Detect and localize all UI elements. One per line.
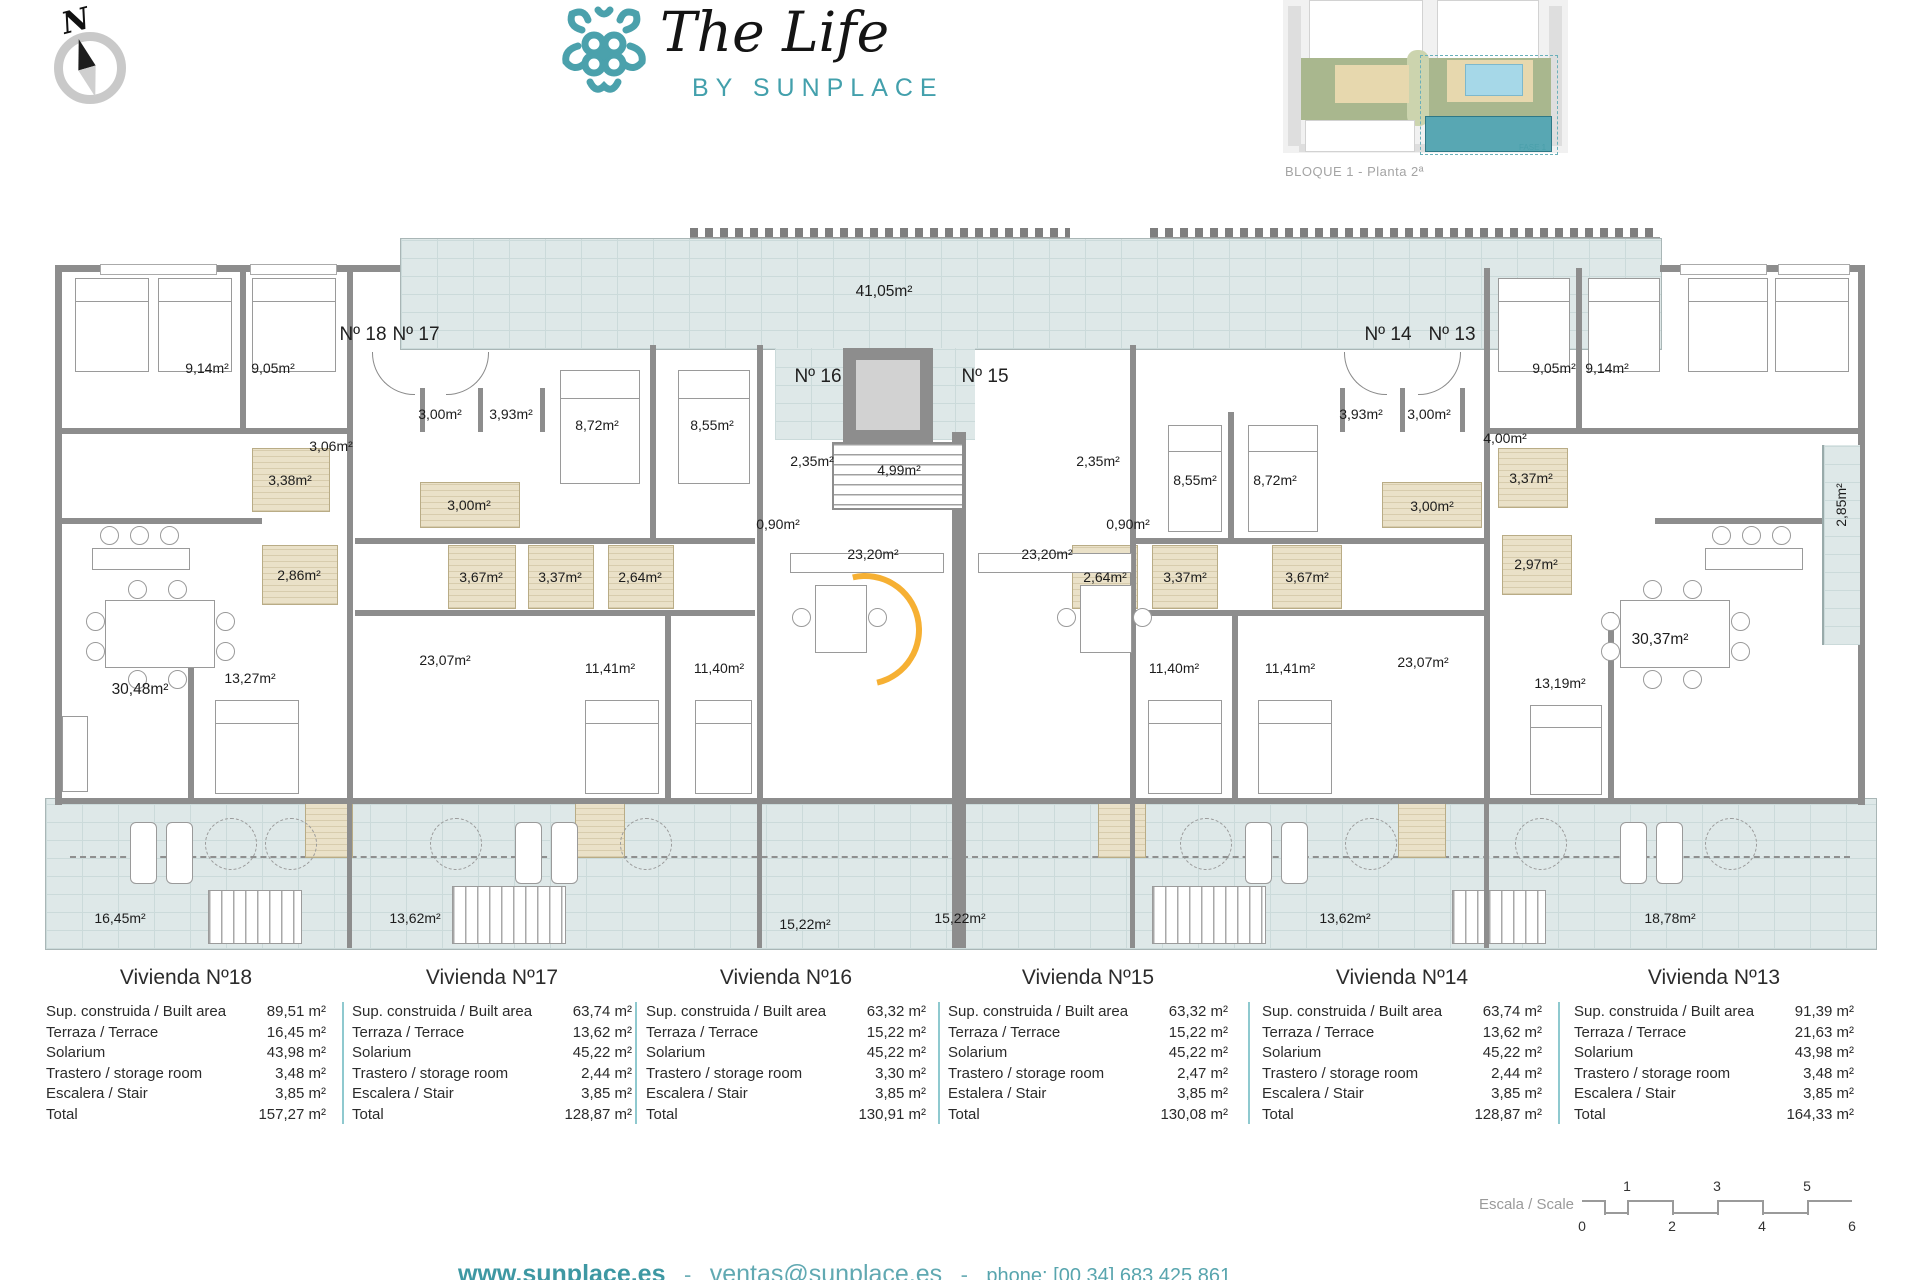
- table-divider: [342, 1002, 344, 1124]
- chair: [1643, 670, 1662, 689]
- wall: [55, 265, 62, 805]
- room-area-label: Nº 17: [392, 324, 439, 346]
- row-label: Total: [352, 1105, 384, 1126]
- table-row: Sup. construida / Built area 89,51 m²: [46, 1002, 326, 1023]
- logo-title: The Life: [660, 0, 950, 74]
- row-value: 45,22 m²: [573, 1043, 632, 1064]
- email-link[interactable]: ventas@sunplace.es: [710, 1260, 942, 1280]
- room-area-label: 13,27m²: [224, 670, 275, 686]
- row-label: Terraza / Terrace: [46, 1023, 158, 1044]
- room-area-label: 3,93m²: [489, 406, 533, 422]
- plant-circle: [1515, 818, 1567, 870]
- row-label: Trastero / storage room: [948, 1064, 1104, 1085]
- room-area-label: 0,90m²: [1106, 516, 1150, 532]
- wall: [665, 612, 671, 798]
- room-area-label: Nº 13: [1428, 324, 1475, 346]
- div: Sup. construida / Built area 63,32 m² Te…: [646, 1002, 926, 1126]
- table-row: Total 128,87 m²: [352, 1105, 632, 1126]
- row-value: 63,74 m²: [573, 1002, 632, 1023]
- scale-segment: [1807, 1200, 1852, 1202]
- furniture: [1148, 700, 1222, 794]
- table-row: Sup. construida / Built area 63,74 m²: [352, 1002, 632, 1023]
- room-area-label: 3,93m²: [1339, 406, 1383, 422]
- chair: [1731, 612, 1750, 631]
- room-area-label: 3,67m²: [459, 569, 503, 585]
- room-area-label: 15,22m²: [779, 916, 830, 932]
- room-area-label: 3,00m²: [418, 406, 462, 422]
- row-label: Escalera / Stair: [1262, 1084, 1364, 1105]
- table-divider: [938, 1002, 940, 1124]
- vivienda-table-title: Vivienda Nº14: [1262, 966, 1542, 990]
- row-label: Escalera / Stair: [352, 1084, 454, 1105]
- row-value: 13,62 m²: [573, 1023, 632, 1044]
- railing: [1150, 228, 1660, 238]
- path: [624, 46, 642, 68]
- row-value: 2,44 m²: [1491, 1064, 1542, 1085]
- path: [590, 82, 618, 89]
- room-area-label: 18,78m²: [1644, 910, 1695, 926]
- furniture: [1775, 278, 1849, 372]
- room-area-label: Nº 18: [339, 324, 386, 346]
- room-area-label: 13,62m²: [389, 910, 440, 926]
- path: [566, 46, 584, 68]
- scale-segment: [1672, 1212, 1717, 1214]
- table-row: Escalera / Stair 3,85 m²: [46, 1084, 326, 1105]
- window: [100, 264, 217, 275]
- path: [571, 12, 588, 30]
- chair: [1133, 608, 1152, 627]
- room-area-label: 11,41m²: [1265, 660, 1315, 676]
- room-area-label: 3,38m²: [268, 472, 312, 488]
- row-label: Total: [1574, 1105, 1606, 1126]
- chair: [160, 526, 179, 545]
- chair: [100, 526, 119, 545]
- row-value: 3,48 m²: [275, 1064, 326, 1085]
- scale-segment: [1627, 1200, 1672, 1202]
- vivienda-table: Vivienda Nº17 Sup. construida / Built ar…: [352, 966, 632, 1126]
- wall: [478, 388, 483, 432]
- wall: [347, 800, 352, 948]
- sun-lounger: [130, 822, 157, 884]
- row-value: 3,85 m²: [875, 1084, 926, 1105]
- table-row: Sup. construida / Built area 91,39 m²: [1574, 1002, 1854, 1023]
- wall: [62, 428, 352, 434]
- table-row: Solarium 45,22 m²: [352, 1043, 632, 1064]
- plant-circle: [620, 818, 672, 870]
- table-divider: [635, 1002, 637, 1124]
- row-value: 91,39 m²: [1795, 1002, 1854, 1023]
- room-area-label: 23,20m²: [847, 546, 898, 562]
- furniture: [215, 700, 299, 794]
- sun-lounger: [1620, 822, 1647, 884]
- row-label: Trastero / storage room: [646, 1064, 802, 1085]
- table-row: Terraza / Terrace 15,22 m²: [948, 1023, 1228, 1044]
- scale-tick: 4: [1758, 1218, 1766, 1234]
- row-value: 21,63 m²: [1795, 1023, 1854, 1044]
- elevator-cab: [856, 360, 920, 430]
- sun-lounger: [551, 822, 578, 884]
- circle: [585, 35, 603, 53]
- furniture: [1258, 700, 1332, 794]
- div: Sup. construida / Built area 63,74 m² Te…: [352, 1002, 632, 1126]
- table-row: Total 128,87 m²: [1262, 1105, 1542, 1126]
- wall: [650, 345, 656, 538]
- room-area-label: 23,07m²: [419, 652, 470, 668]
- furniture: [92, 548, 190, 570]
- scale-tick-mark: [1762, 1200, 1764, 1215]
- stairs: [208, 890, 302, 944]
- row-label: Solarium: [1262, 1043, 1321, 1064]
- room-area-label: 2,64m²: [1083, 569, 1127, 585]
- scale-segment: [1762, 1212, 1807, 1214]
- table-row: Solarium 45,22 m²: [1262, 1043, 1542, 1064]
- chair: [1712, 526, 1731, 545]
- row-value: 3,85 m²: [1803, 1084, 1854, 1105]
- chair: [130, 526, 149, 545]
- room-area-label: 11,40m²: [1149, 660, 1199, 676]
- room-area-label: 4,99m²: [877, 462, 921, 478]
- sun-lounger: [515, 822, 542, 884]
- sunplace-knot-logo-icon: [552, 2, 656, 102]
- wall: [1460, 388, 1465, 432]
- row-label: Trastero / storage room: [1574, 1064, 1730, 1085]
- wall: [1228, 412, 1234, 538]
- scale-tick-mark: [1807, 1200, 1809, 1215]
- table-row: Terraza / Terrace 21,63 m²: [1574, 1023, 1854, 1044]
- circle: [605, 35, 623, 53]
- row-value: 45,22 m²: [867, 1043, 926, 1064]
- furniture: [1530, 705, 1602, 795]
- row-label: Trastero / storage room: [1262, 1064, 1418, 1085]
- scale-tick-mark: [1627, 1200, 1629, 1215]
- table-row: Total 130,91 m²: [646, 1105, 926, 1126]
- sun-lounger: [1245, 822, 1272, 884]
- vivienda-table-title: Vivienda Nº18: [46, 966, 326, 990]
- room-area-label: 3,37m²: [538, 569, 582, 585]
- room-area-label: Nº 15: [961, 366, 1008, 388]
- furniture: [1688, 278, 1768, 372]
- row-label: Sup. construida / Built area: [948, 1002, 1128, 1023]
- room-area-label: 23,07m²: [1397, 654, 1448, 670]
- road: [1288, 6, 1301, 146]
- building: [1309, 0, 1423, 60]
- scale-tick: 1: [1623, 1178, 1631, 1194]
- table-row: Terraza / Terrace 15,22 m²: [646, 1023, 926, 1044]
- room-area-label: 0,90m²: [756, 516, 800, 532]
- table-divider: [1558, 1002, 1560, 1124]
- row-label: Terraza / Terrace: [1262, 1023, 1374, 1044]
- row-label: Solarium: [646, 1043, 705, 1064]
- table-row: Trastero / storage room 3,48 m²: [46, 1064, 326, 1085]
- div: Sup. construida / Built area 63,74 m² Te…: [1262, 1002, 1542, 1126]
- table-row: Trastero / storage room 3,30 m²: [646, 1064, 926, 1085]
- room-area-label: Nº 16: [794, 366, 841, 388]
- row-value: 3,85 m²: [1491, 1084, 1542, 1105]
- row-value: 3,85 m²: [275, 1084, 326, 1105]
- sun-lounger: [1656, 822, 1683, 884]
- row-value: 45,22 m²: [1483, 1043, 1542, 1064]
- scale-tick-mark: [1604, 1200, 1606, 1215]
- siteplan-fase-label: FASE 1: [1519, 143, 1546, 152]
- row-label: Trastero / storage room: [46, 1064, 202, 1085]
- furniture: [585, 700, 659, 794]
- chair: [1601, 612, 1620, 631]
- scale-segment: [1604, 1212, 1627, 1214]
- plant-circle: [1180, 818, 1232, 870]
- table-divider: [1248, 1002, 1250, 1124]
- scale-tick: 0: [1578, 1218, 1586, 1234]
- phone-label: phone: [00 34] 683 425 861: [986, 1265, 1231, 1280]
- room-area-label: 2,35m²: [790, 453, 834, 469]
- scale-tick-mark: [1717, 1200, 1719, 1215]
- wall: [1484, 268, 1490, 800]
- plant-circle: [1345, 818, 1397, 870]
- path: [598, 10, 610, 14]
- wall: [355, 610, 755, 616]
- row-value: 13,62 m²: [1483, 1023, 1542, 1044]
- row-label: Escalera / Stair: [646, 1084, 748, 1105]
- sun-lounger: [1281, 822, 1308, 884]
- div: Sup. construida / Built area 63,32 m² Te…: [948, 1002, 1228, 1126]
- wall: [1484, 800, 1489, 948]
- scale-tick: 2: [1668, 1218, 1676, 1234]
- chair: [1057, 608, 1076, 627]
- table-row: Escalera / Stair 3,85 m²: [646, 1084, 926, 1105]
- vivienda-table-title: Vivienda Nº13: [1574, 966, 1854, 990]
- path: [620, 12, 637, 30]
- website-link[interactable]: www.sunplace.es: [458, 1260, 665, 1280]
- row-label: Total: [646, 1105, 678, 1126]
- chair: [216, 612, 235, 631]
- stairs: [1452, 890, 1546, 944]
- furniture: [1080, 585, 1132, 653]
- row-label: Terraza / Terrace: [352, 1023, 464, 1044]
- row-value: 15,22 m²: [1169, 1023, 1228, 1044]
- table-row: Escalera / Stair 3,85 m²: [1574, 1084, 1854, 1105]
- siteplan-caption: BLOQUE 1 - Planta 2ª: [1285, 164, 1424, 179]
- room-area-label: 15,22m²: [934, 910, 985, 926]
- bathroom: [1398, 800, 1446, 858]
- wall: [347, 268, 353, 800]
- room-area-label: 3,37m²: [1163, 569, 1207, 585]
- room-area-label: 3,00m²: [447, 497, 491, 513]
- wall: [757, 345, 763, 800]
- row-label: Sup. construida / Built area: [646, 1002, 826, 1023]
- table-row: Solarium 45,22 m²: [948, 1043, 1228, 1064]
- row-label: Estalera / Stair: [948, 1084, 1046, 1105]
- wall: [1400, 388, 1405, 432]
- row-label: Solarium: [46, 1043, 105, 1064]
- table-row: Trastero / storage room 2,47 m²: [948, 1064, 1228, 1085]
- bathroom: [1098, 800, 1146, 858]
- circle: [585, 55, 603, 73]
- building: [1437, 0, 1539, 60]
- div: Sup. construida / Built area 91,39 m² Te…: [1574, 1002, 1854, 1126]
- room-area-label: 3,00m²: [1407, 406, 1451, 422]
- row-value: 157,27 m²: [258, 1105, 326, 1126]
- plant-circle: [205, 818, 257, 870]
- row-value: 130,91 m²: [858, 1105, 926, 1126]
- room-area-label: 11,41m²: [585, 660, 635, 676]
- row-label: Sup. construida / Built area: [1262, 1002, 1442, 1023]
- furniture: [75, 278, 149, 372]
- room-area-label: 9,14m²: [1585, 360, 1629, 376]
- row-label: Solarium: [352, 1043, 411, 1064]
- room-area-label: 2,35m²: [1076, 453, 1120, 469]
- footer-separator: -: [684, 1262, 691, 1280]
- circle: [605, 55, 623, 73]
- row-label: Sup. construida / Built area: [352, 1002, 532, 1023]
- row-label: Solarium: [1574, 1043, 1633, 1064]
- deck: [1335, 65, 1409, 103]
- room-area-label: 2,64m²: [618, 569, 662, 585]
- row-label: Terraza / Terrace: [948, 1023, 1060, 1044]
- row-value: 15,22 m²: [867, 1023, 926, 1044]
- scale-tick: 6: [1848, 1218, 1856, 1234]
- table-row: Solarium 43,98 m²: [46, 1043, 326, 1064]
- scale-tick: 5: [1803, 1178, 1811, 1194]
- row-label: Total: [948, 1105, 980, 1126]
- plant-circle: [265, 818, 317, 870]
- row-value: 43,98 m²: [267, 1043, 326, 1064]
- chair: [1643, 580, 1662, 599]
- row-value: 89,51 m²: [267, 1002, 326, 1023]
- row-label: Terraza / Terrace: [646, 1023, 758, 1044]
- table-row: Escalera / Stair 3,85 m²: [352, 1084, 632, 1105]
- row-label: Escalera / Stair: [1574, 1084, 1676, 1105]
- vivienda-table-title: Vivienda Nº16: [646, 966, 926, 990]
- vivienda-table: Vivienda Nº13 Sup. construida / Built ar…: [1574, 966, 1854, 1126]
- vivienda-table: Vivienda Nº18 Sup. construida / Built ar…: [46, 966, 326, 1126]
- plant-circle: [1705, 818, 1757, 870]
- site-plan-thumbnail: FASE 1: [1283, 0, 1568, 153]
- railing: [690, 228, 1070, 238]
- vivienda-table: Vivienda Nº16 Sup. construida / Built ar…: [646, 966, 926, 1126]
- row-value: 45,22 m²: [1169, 1043, 1228, 1064]
- row-label: Terraza / Terrace: [1574, 1023, 1686, 1044]
- table-row: Trastero / storage room 2,44 m²: [352, 1064, 632, 1085]
- footer: www.sunplace.es - ventas@sunplace.es - p…: [458, 1260, 1231, 1280]
- row-value: 3,85 m²: [581, 1084, 632, 1105]
- table-row: Estalera / Stair 3,85 m²: [948, 1084, 1228, 1105]
- table-row: Trastero / storage room 3,48 m²: [1574, 1064, 1854, 1085]
- wall: [355, 538, 755, 544]
- vivienda-table: Vivienda Nº14 Sup. construida / Built ar…: [1262, 966, 1542, 1126]
- room-area-label: 23,20m²: [1021, 546, 1072, 562]
- row-label: Total: [1262, 1105, 1294, 1126]
- table-row: Sup. construida / Built area 63,74 m²: [1262, 1002, 1542, 1023]
- room-area-label: Nº 14: [1364, 324, 1411, 346]
- row-label: Sup. construida / Built area: [1574, 1002, 1754, 1023]
- table-row: Solarium 45,22 m²: [646, 1043, 926, 1064]
- row-value: 3,30 m²: [875, 1064, 926, 1085]
- table-row: Terraza / Terrace 13,62 m²: [1262, 1023, 1542, 1044]
- table-row: Terraza / Terrace 16,45 m²: [46, 1023, 326, 1044]
- row-value: 128,87 m²: [1474, 1105, 1542, 1126]
- table-row: Escalera / Stair 3,85 m²: [1262, 1084, 1542, 1105]
- chair: [86, 642, 105, 661]
- row-value: 2,47 m²: [1177, 1064, 1228, 1085]
- div: Sup. construida / Built area 89,51 m² Te…: [46, 1002, 326, 1126]
- room-area-label: 2,97m²: [1514, 556, 1558, 572]
- logo-subtitle: BY SUNPLACE: [692, 74, 944, 103]
- chair: [1683, 670, 1702, 689]
- row-label: Trastero / storage room: [352, 1064, 508, 1085]
- window: [1680, 264, 1767, 275]
- chair: [1683, 580, 1702, 599]
- table-row: Sup. construida / Built area 63,32 m²: [948, 1002, 1228, 1023]
- chair: [128, 580, 147, 599]
- room-area-label: 8,72m²: [1253, 472, 1297, 488]
- row-value: 63,74 m²: [1483, 1002, 1542, 1023]
- vivienda-table-title: Vivienda Nº17: [352, 966, 632, 990]
- room-area-label: 11,40m²: [694, 660, 744, 676]
- furniture: [1588, 278, 1660, 372]
- room-area-label: 8,55m²: [690, 417, 734, 433]
- table-row: Solarium 43,98 m²: [1574, 1043, 1854, 1064]
- wall: [1490, 428, 1860, 434]
- table-row: Trastero / storage room 2,44 m²: [1262, 1064, 1542, 1085]
- chair: [1601, 642, 1620, 661]
- scale-tick: 3: [1713, 1178, 1721, 1194]
- furniture: [62, 716, 88, 792]
- row-value: 164,33 m²: [1786, 1105, 1854, 1126]
- room-area-label: 3,37m²: [1509, 470, 1553, 486]
- room-area-label: 13,62m²: [1319, 910, 1370, 926]
- chair: [216, 642, 235, 661]
- sun-lounger: [166, 822, 193, 884]
- building: [1305, 120, 1415, 152]
- stairs: [1152, 886, 1266, 944]
- table-row: Terraza / Terrace 13,62 m²: [352, 1023, 632, 1044]
- room-area-label: 9,14m²: [185, 360, 229, 376]
- room-area-label: 2,86m²: [277, 567, 321, 583]
- wall: [240, 268, 246, 428]
- chair: [1742, 526, 1761, 545]
- scale-caption: Escala / Scale: [1462, 1196, 1574, 1213]
- fase-outline: [1420, 55, 1558, 155]
- chair: [1731, 642, 1750, 661]
- room-area-label: 30,37m²: [1632, 631, 1689, 649]
- room-area-label: 30,48m²: [112, 681, 169, 699]
- wall: [1608, 612, 1614, 798]
- room-area-label: 3,67m²: [1285, 569, 1329, 585]
- wall: [757, 800, 762, 948]
- row-label: Solarium: [948, 1043, 1007, 1064]
- row-value: 43,98 m²: [1795, 1043, 1854, 1064]
- bathroom: [575, 800, 625, 858]
- row-label: Escalera / Stair: [46, 1084, 148, 1105]
- room-area-label: 3,06m²: [309, 438, 353, 454]
- row-value: 3,85 m²: [1177, 1084, 1228, 1105]
- wall: [1232, 612, 1238, 798]
- north-compass-icon: N: [40, 4, 130, 114]
- room-area-label: 9,05m²: [251, 360, 295, 376]
- chair: [168, 580, 187, 599]
- wall: [1130, 800, 1135, 948]
- chair: [86, 612, 105, 631]
- room-area-label: 9,05m²: [1532, 360, 1576, 376]
- table-row: Total 157,27 m²: [46, 1105, 326, 1126]
- wall: [1136, 610, 1488, 616]
- footer-separator: -: [961, 1262, 968, 1280]
- scale-tick-mark: [1672, 1200, 1674, 1215]
- stairs: [452, 886, 566, 944]
- wall: [540, 388, 545, 432]
- row-label: Sup. construida / Built area: [46, 1002, 226, 1023]
- furniture: [105, 600, 215, 668]
- furniture: [1498, 278, 1570, 372]
